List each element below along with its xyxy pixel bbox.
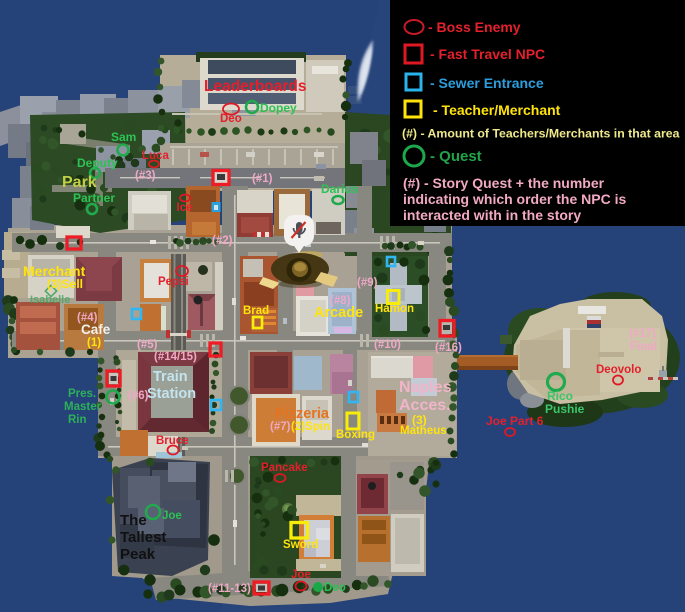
svg-text:Acces.: Acces.: [399, 397, 451, 414]
svg-text:Pres.: Pres.: [68, 388, 96, 400]
svg-text:Hamon: Hamon: [375, 303, 414, 315]
svg-text:Sam: Sam: [111, 130, 136, 144]
svg-text:Bruce: Bruce: [156, 435, 189, 447]
svg-text:The: The: [120, 512, 147, 529]
svg-text:Darius: Darius: [321, 182, 359, 196]
svg-text:interacted with in the story: interacted with in the story: [403, 207, 581, 223]
svg-text:(#9): (#9): [357, 277, 378, 289]
svg-text:(#17): (#17): [629, 328, 656, 340]
svg-text:Pepsi: Pepsi: [158, 276, 189, 288]
svg-text:- Quest: - Quest: [430, 148, 482, 165]
svg-text:Arcade: Arcade: [314, 305, 363, 321]
svg-text:(#14/15): (#14/15): [154, 351, 197, 363]
svg-text:(#) - Amount of Teachers/Merch: (#) - Amount of Teachers/Merchants in th…: [402, 127, 680, 141]
svg-text:Rico: Rico: [547, 389, 573, 403]
svg-text:Brad: Brad: [243, 305, 269, 317]
svg-text:Cafe: Cafe: [81, 322, 111, 337]
svg-text:Deovolo: Deovolo: [596, 364, 641, 376]
svg-text:(2)Spin: (2)Spin: [291, 421, 330, 433]
svg-text:Matheus: Matheus: [400, 425, 447, 437]
svg-text:- Teacher/Merchant: - Teacher/Merchant: [433, 102, 561, 118]
svg-text:(#3): (#3): [135, 170, 156, 182]
svg-text:(#5): (#5): [137, 339, 158, 351]
svg-text:Naples: Naples: [399, 379, 452, 396]
svg-text:- Fast Travel NPC: - Fast Travel NPC: [430, 46, 545, 62]
svg-text:Ice: Ice: [177, 202, 193, 214]
svg-text:Station: Station: [147, 386, 196, 402]
svg-text:Joe: Joe: [162, 510, 182, 522]
svg-text:Partner: Partner: [73, 191, 115, 205]
svg-text:Final: Final: [630, 341, 657, 353]
svg-text:(#16): (#16): [435, 342, 462, 354]
svg-text:(3)Sell: (3)Sell: [47, 277, 83, 291]
svg-text:(#11-13): (#11-13): [208, 583, 251, 595]
svg-text:Peak: Peak: [120, 546, 156, 563]
svg-text:Joe Part 6: Joe Part 6: [486, 414, 544, 428]
svg-text:Deputy: Deputy: [77, 156, 118, 170]
svg-text:Deo: Deo: [220, 113, 242, 125]
svg-text:(#7): (#7): [270, 421, 291, 433]
svg-text:Isabelle: Isabelle: [30, 294, 70, 306]
svg-text:indicating which order the NPC: indicating which order the NPC is: [403, 191, 626, 207]
svg-text:Boxing: Boxing: [336, 429, 375, 441]
svg-text:Leaderboards: Leaderboards: [204, 78, 307, 95]
svg-text:(#) - Story Quest + the number: (#) - Story Quest + the number: [403, 175, 605, 191]
svg-text:Luca: Luca: [142, 150, 169, 162]
svg-text:Train: Train: [153, 369, 188, 385]
svg-text:(#10): (#10): [374, 339, 401, 351]
svg-text:Pizzeria: Pizzeria: [275, 406, 330, 422]
svg-text:- Sewer Entrance: - Sewer Entrance: [430, 75, 544, 91]
svg-text:(1): (1): [87, 337, 101, 349]
svg-text:Rin: Rin: [68, 414, 87, 426]
svg-text:(#2): (#2): [212, 235, 233, 247]
svg-text:Park: Park: [62, 174, 97, 191]
svg-text:Master: Master: [64, 401, 102, 413]
svg-text:Tallest: Tallest: [120, 529, 166, 546]
svg-text:(#6): (#6): [128, 390, 149, 402]
svg-text:Dopey: Dopey: [260, 101, 297, 115]
svg-text:Pushie: Pushie: [545, 402, 585, 416]
svg-text:Joe: Joe: [291, 569, 311, 581]
svg-text:Deo: Deo: [324, 582, 346, 594]
svg-text:- Boss Enemy: - Boss Enemy: [428, 19, 521, 35]
svg-text:(#1): (#1): [252, 173, 273, 185]
svg-text:Sword: Sword: [283, 539, 318, 551]
svg-text:Pancake: Pancake: [261, 462, 308, 474]
